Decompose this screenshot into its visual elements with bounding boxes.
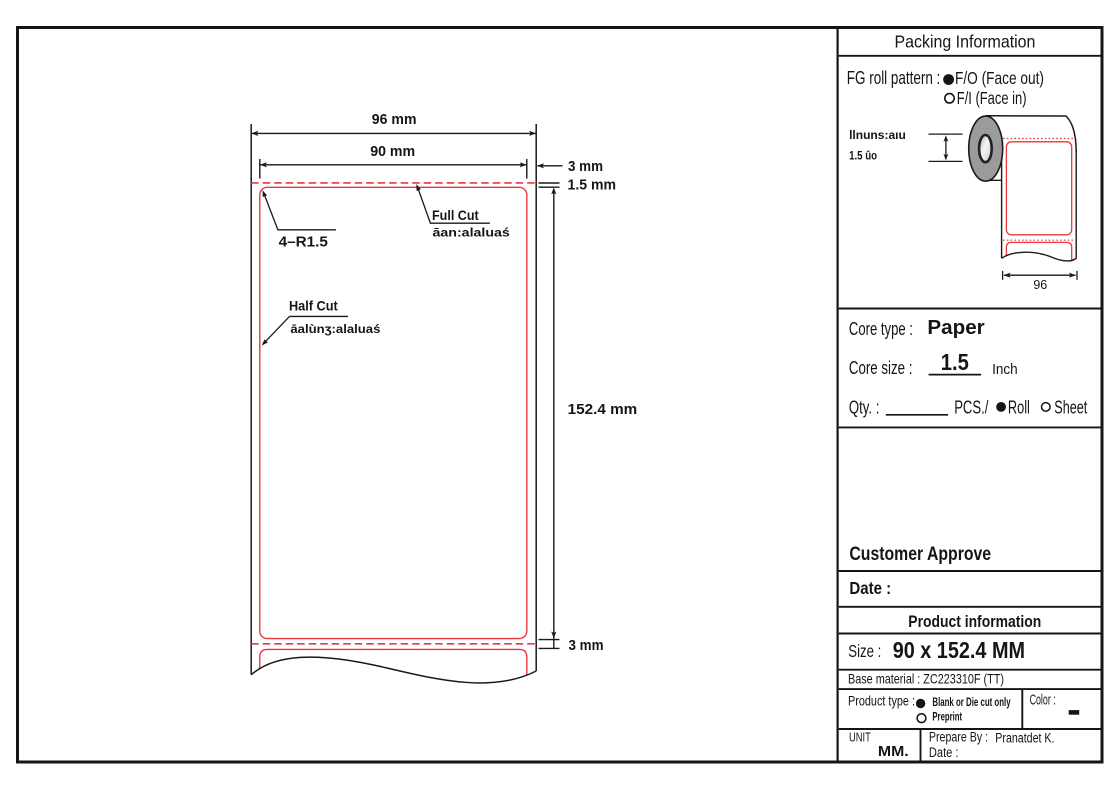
svg-text:152.4 mm: 152.4 mm — [568, 402, 638, 418]
svg-text:90 x 152.4 MM: 90 x 152.4 MM — [893, 637, 1025, 663]
svg-text:4–R1.5: 4–R1.5 — [279, 234, 328, 250]
svg-text:Core type :: Core type : — [849, 318, 913, 339]
svg-text:Prepare By :: Prepare By : — [929, 729, 988, 745]
svg-text:1.5 ûo: 1.5 ûo — [849, 148, 877, 162]
svg-text:1.5: 1.5 — [941, 349, 969, 375]
svg-text:Pranatdet K.: Pranatdet K. — [995, 730, 1054, 746]
svg-text:Date :: Date : — [929, 744, 959, 760]
svg-text:UNIT: UNIT — [849, 730, 871, 745]
svg-text:Customer Approve: Customer Approve — [849, 544, 991, 565]
svg-text:Half Cut: Half Cut — [289, 298, 338, 314]
svg-text:3 mm: 3 mm — [569, 638, 604, 654]
svg-text:F/O (Face out): F/O (Face out) — [955, 68, 1044, 88]
svg-text:FG roll pattern :: FG roll pattern : — [847, 68, 941, 88]
svg-text:Inch: Inch — [992, 361, 1018, 378]
svg-text:Date :: Date : — [849, 578, 891, 598]
svg-text:Qty. :: Qty. : — [849, 396, 880, 417]
svg-text:Base material : ZC223310F (TT): Base material : ZC223310F (TT) — [848, 671, 1004, 687]
svg-text:Sheet: Sheet — [1054, 396, 1088, 417]
svg-text:3 mm: 3 mm — [568, 159, 603, 175]
svg-text:Blank or Die cut only: Blank or Die cut only — [932, 695, 1010, 709]
svg-text:Paper: Paper — [927, 317, 985, 339]
svg-text:90 mm: 90 mm — [370, 144, 415, 160]
svg-text:Color :: Color : — [1030, 693, 1056, 709]
svg-text:llnuns:aıu: llnuns:aıu — [849, 130, 906, 142]
svg-text:1.5 mm: 1.5 mm — [568, 178, 617, 194]
svg-text:96 mm: 96 mm — [372, 112, 417, 128]
svg-text:Roll: Roll — [1008, 396, 1030, 417]
svg-text:Preprint: Preprint — [932, 710, 962, 724]
svg-text:Size :: Size : — [848, 641, 881, 661]
svg-text:āalùnʒ:alaluaś: āalùnʒ:alaluaś — [290, 322, 380, 336]
svg-text:Product type :: Product type : — [848, 692, 915, 708]
svg-text:Full Cut: Full Cut — [432, 208, 479, 223]
svg-text:Core size :: Core size : — [849, 357, 913, 378]
svg-text:Product information: Product information — [908, 612, 1041, 631]
svg-text:MM.: MM. — [878, 743, 909, 760]
svg-text:āan:alaluaś: āan:alaluaś — [433, 226, 511, 240]
svg-text:F/I (Face in): F/I (Face in) — [957, 88, 1027, 108]
svg-text:PCS./: PCS./ — [954, 396, 989, 417]
svg-text:Packing Information: Packing Information — [895, 32, 1036, 52]
svg-text:96: 96 — [1033, 278, 1047, 292]
